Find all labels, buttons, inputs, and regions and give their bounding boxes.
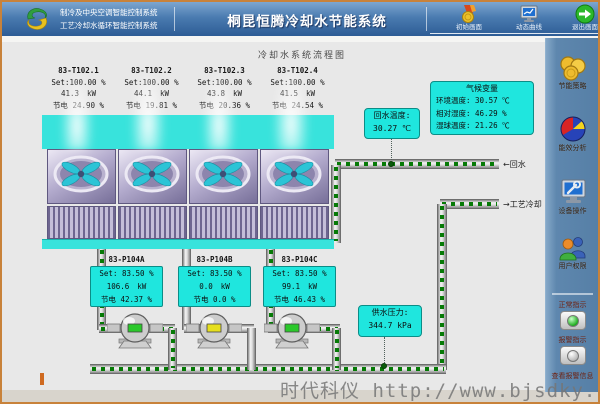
pump-panel-c: 83-P104C Set: 83.50 % 99.1kW 节电 46.43 % [263, 254, 336, 307]
sidebar-label-efficiency-analysis: 能效分析 [546, 144, 599, 153]
pump-readout: Set: 83.50 % 106.6kW 节电 42.37 % [90, 266, 163, 307]
normal-indicator-light[interactable] [560, 311, 586, 330]
medal-icon [459, 4, 479, 24]
header-bottom-strip [2, 36, 598, 42]
fan-icon [190, 150, 257, 203]
pump-saving: 节电 42.37 % [91, 293, 162, 306]
return-temp-box: 回水温度: 30.27 ℃ [364, 108, 420, 139]
tower-fan-housing [47, 149, 116, 204]
return-temp-label: 回水温度: [365, 109, 419, 122]
tower-id: 83-T102.3 [188, 65, 261, 77]
tower-id: 83-T102.1 [42, 65, 115, 77]
process-cooling-pipe [440, 199, 499, 209]
exit-arrow-icon [575, 4, 595, 24]
monitor-curve-icon [519, 4, 539, 24]
dynamic-curve-label: 动态曲线 [504, 24, 554, 31]
process-cooling-label: →工艺冷却 [503, 199, 542, 210]
pump-readout: Set: 83.50 % 0.0kW 节电 0.0 % [178, 266, 251, 307]
tower-setpoint: Set:100.00 % [42, 77, 115, 89]
tower-saving: 节电 19.81 % [115, 100, 188, 112]
sidebar-label-device-operation: 设备操作 [546, 207, 599, 216]
supply-pressure-sensor-line [384, 337, 385, 365]
initial-screen-button[interactable]: 初始画面 [444, 4, 494, 35]
fan-icon [119, 150, 186, 203]
pump-setpoint: Set: 83.50 % [264, 267, 335, 280]
pump-a-graphic[interactable] [107, 308, 163, 350]
process-riser-pipe [437, 204, 447, 370]
return-temp-value: 30.27 ℃ [365, 122, 419, 135]
return-temp-sensor-line [391, 139, 392, 160]
pie-chart-icon [558, 114, 588, 144]
tower-fan-housing [118, 149, 187, 204]
pump-a-discharge-pipe [168, 328, 177, 370]
tower-setpoint: Set:100.00 % [261, 77, 334, 89]
climate-title: 气候变量 [431, 82, 533, 95]
exit-screen-button[interactable]: 退出画面 [560, 4, 600, 35]
pump-readout: Set: 83.50 % 99.1kW 节电 46.43 % [263, 266, 336, 307]
tower-fan-housing [189, 149, 258, 204]
return-water-pipe [335, 159, 499, 169]
tower-data-row: 83-T102.1 Set:100.00 % 41.3kW 节电 24.90 %… [42, 65, 334, 111]
pump-panel-b: 83-P104B Set: 83.50 % 0.0kW 节电 0.0 % [178, 254, 251, 307]
cooling-tower-4 [260, 149, 329, 239]
diagram-title: 冷却水系统流程图 [237, 48, 367, 61]
header-divider-left [174, 7, 175, 31]
sidebar-item-user-rights[interactable]: 用户权限 [546, 234, 599, 271]
cooling-tower-2 [118, 149, 187, 239]
fan-icon [48, 150, 115, 203]
tower-setpoint: Set:100.00 % [188, 77, 261, 89]
supply-pressure-sensor-dot [381, 363, 387, 369]
tower-panel-1: 83-T102.1 Set:100.00 % 41.3kW 节电 24.90 % [42, 65, 115, 111]
pump-power: 0.0kW [179, 280, 250, 293]
return-temp-sensor-dot [388, 161, 394, 167]
hmi-window: 制冷及中央空调智能控制系统 工艺冷却水循环智能控制系统 桐昆恒腾冷却水节能系统 … [0, 0, 600, 404]
gray-light-icon [567, 350, 579, 362]
relative-humidity: 相对湿度: 46.29 % [431, 108, 533, 121]
system-name-line2: 工艺冷却水循环智能控制系统 [60, 19, 158, 32]
tower-power: 43.8kW [188, 88, 261, 100]
tower-louver [47, 206, 116, 239]
tower-louver [189, 206, 258, 239]
tower-saving: 节电 20.36 % [188, 100, 261, 112]
return-down-pipe [331, 165, 341, 243]
pump-c-graphic[interactable] [264, 308, 320, 350]
system-name-lines: 制冷及中央空调智能控制系统 工艺冷却水循环智能控制系统 [60, 6, 158, 32]
ambient-temp: 环境温度: 30.57 ℃ [431, 95, 533, 108]
tower-saving: 节电 24.54 % [261, 100, 334, 112]
wet-bulb-temp: 湿球温度: 21.26 ℃ [431, 120, 533, 133]
climate-box: 气候变量 环境温度: 30.57 ℃ 相对湿度: 46.29 % 湿球温度: 2… [430, 81, 534, 135]
pump-id: 83-P104C [263, 254, 336, 266]
sidebar-item-energy-strategy[interactable]: 节能策略 [546, 54, 599, 91]
pump-setpoint: Set: 83.50 % [91, 267, 162, 280]
supply-pressure-box: 供水压力: 344.7 kPa [358, 305, 422, 337]
pump-c-discharge-pipe [332, 328, 341, 370]
tower-saving: 节电 24.90 % [42, 100, 115, 112]
pump-b-discharge-pipe [247, 328, 256, 370]
tower-setpoint: Set:100.00 % [115, 77, 188, 89]
return-water-label: ←回水 [503, 159, 526, 170]
tower-power: 41.3kW [42, 88, 115, 100]
tower-louver [118, 206, 187, 239]
pump-power: 99.1kW [264, 280, 335, 293]
system-name-line1: 制冷及中央空调智能控制系统 [60, 6, 158, 19]
alarm-indicator-light[interactable] [560, 346, 586, 365]
company-logo-icon [18, 5, 56, 33]
alarm-indicator-label: 报警指示 [546, 335, 599, 345]
dynamic-curve-button[interactable]: 动态曲线 [504, 4, 554, 35]
sidebar-label-user-rights: 用户权限 [546, 262, 599, 271]
sidebar-label-energy-strategy: 节能策略 [546, 82, 599, 91]
watermark-tick [40, 373, 44, 385]
supply-header-pipe [90, 364, 446, 374]
pump-saving: 节电 0.0 % [179, 293, 250, 306]
pump-b-graphic[interactable] [186, 308, 242, 350]
tower-id: 83-T102.2 [115, 65, 188, 77]
tower-louver [260, 206, 329, 239]
tower-panel-4: 83-T102.4 Set:100.00 % 41.5kW 节电 24.54 % [261, 65, 334, 111]
sidebar: 节能策略 能效分析 设备操作 [545, 38, 598, 392]
tower-fan-housing [260, 149, 329, 204]
fan-icon [261, 150, 328, 203]
pump-setpoint: Set: 83.50 % [179, 267, 250, 280]
normal-indicator-label: 正常指示 [546, 300, 599, 310]
pump-panel-a: 83-P104A Set: 83.50 % 106.6kW 节电 42.37 % [90, 254, 163, 307]
tower-id: 83-T102.4 [261, 65, 334, 77]
green-light-icon [567, 315, 579, 327]
sidebar-item-efficiency-analysis[interactable]: 能效分析 [546, 114, 599, 153]
sidebar-divider [552, 293, 593, 295]
sidebar-item-device-operation[interactable]: 设备操作 [546, 177, 599, 216]
monitor-wrench-icon [558, 177, 588, 207]
supply-pressure-value: 344.7 kPa [359, 319, 421, 332]
initial-screen-label: 初始画面 [444, 24, 494, 31]
header-underline [430, 33, 598, 34]
exit-screen-label: 退出画面 [560, 24, 600, 31]
cooling-tower-3 [189, 149, 258, 239]
pump-saving: 节电 46.43 % [264, 293, 335, 306]
tower-panel-3: 83-T102.3 Set:100.00 % 43.8kW 节电 20.36 % [188, 65, 261, 111]
header-divider-right [426, 7, 427, 31]
pump-id: 83-P104B [178, 254, 251, 266]
cooling-tower-1 [47, 149, 116, 239]
pump-id: 83-P104A [90, 254, 163, 266]
pump-power: 106.6kW [91, 280, 162, 293]
tower-panel-2: 83-T102.2 Set:100.00 % 44.1kW 节电 19.81 % [115, 65, 188, 111]
tower-basin [42, 239, 334, 249]
tower-top-band [42, 115, 334, 149]
tower-power: 41.5kW [261, 88, 334, 100]
users-icon [558, 234, 588, 262]
coins-icon [558, 54, 588, 82]
page-title: 桐昆恒腾冷却水节能系统 [202, 10, 412, 30]
tower-power: 44.1kW [115, 88, 188, 100]
header-bar: 制冷及中央空调智能控制系统 工艺冷却水循环智能控制系统 桐昆恒腾冷却水节能系统 … [2, 2, 598, 36]
supply-pressure-label: 供水压力: [359, 306, 421, 319]
bottom-bar [2, 390, 598, 402]
view-alarm-info-link[interactable]: 查看报警信息 [546, 371, 599, 381]
